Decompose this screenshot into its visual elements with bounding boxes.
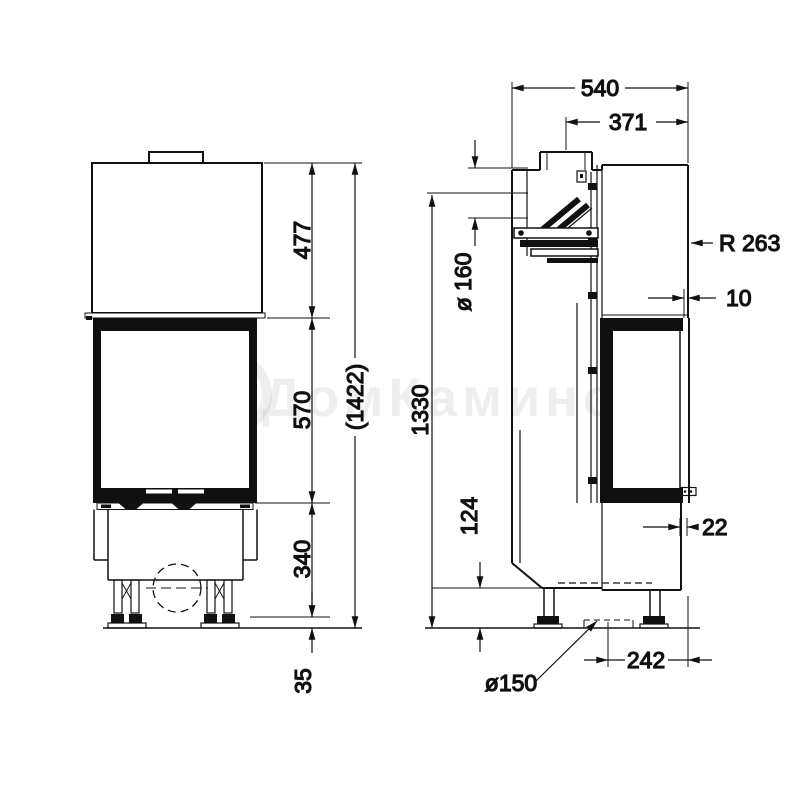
- technical-drawing-page: ДомКаминов: [0, 0, 800, 800]
- dim-side-top-gap: 10: [726, 285, 752, 311]
- dim-side-depth: 540: [581, 75, 619, 101]
- dim-side-front-radius: R 263: [719, 230, 780, 256]
- dim-front-base-height: 340: [289, 540, 315, 578]
- dim-front-window-height: 570: [289, 391, 315, 429]
- watermark-text: ДомКаминов: [262, 368, 659, 428]
- front-dimensions: 477 570 340 35 (1422): [250, 163, 368, 694]
- front-right-leg: [201, 580, 239, 628]
- front-left-leg: [108, 580, 146, 628]
- dim-front-feet-height: 35: [290, 668, 316, 694]
- dim-side-rear-outlet-height: 1330: [407, 384, 433, 435]
- side-baffle-plates: [514, 228, 598, 263]
- dim-side-plinth-height: 124: [456, 497, 482, 536]
- dim-side-air-intake-offset: 242: [627, 647, 665, 673]
- front-lip: [85, 313, 265, 318]
- fireplace-dimension-drawing: ДомКаминов: [0, 0, 800, 800]
- dim-side-door-gap: 22: [702, 514, 728, 540]
- dim-front-top-section: 477: [289, 221, 315, 259]
- dim-side-flue-offset: 371: [609, 109, 647, 135]
- dim-side-air-intake-diameter: ø150: [485, 670, 537, 696]
- front-door-glass: [101, 331, 249, 488]
- dim-side-flue-pipe-diameter: ø 160: [450, 253, 476, 312]
- front-flue-collar: [149, 152, 203, 163]
- dim-front-total-height: (1422): [342, 364, 368, 430]
- front-hood: [92, 163, 262, 313]
